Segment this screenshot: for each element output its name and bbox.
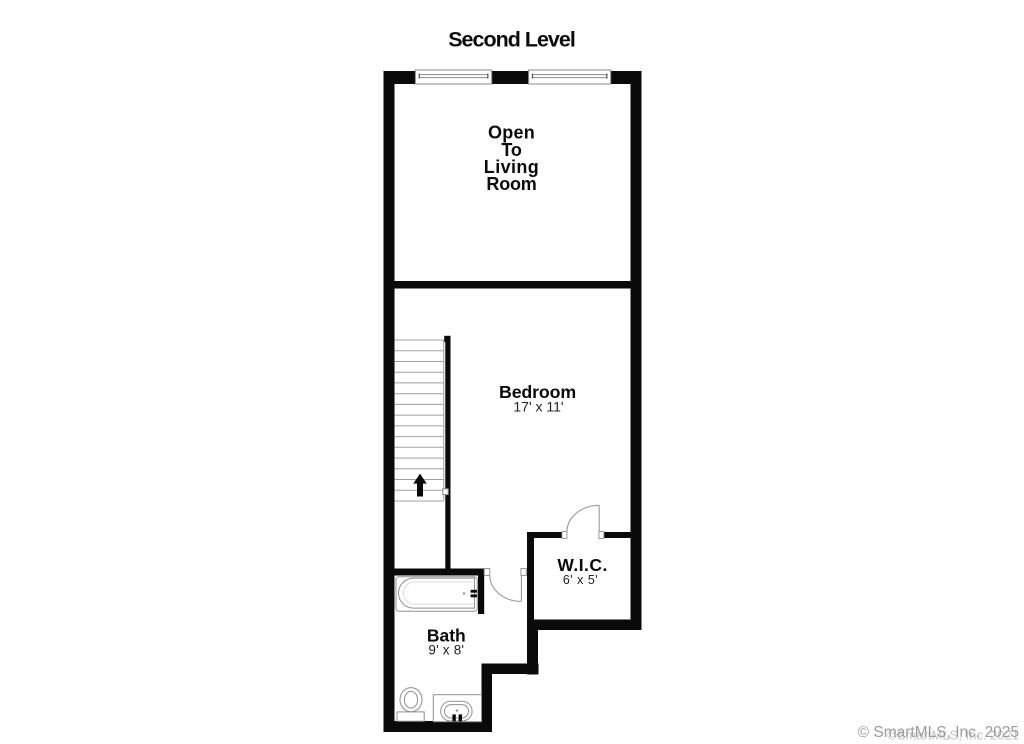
svg-text:6' x 5': 6' x 5' (563, 573, 598, 587)
svg-text:W.I.C.: W.I.C. (557, 555, 607, 575)
svg-text:Room: Room (486, 174, 536, 194)
svg-text:© SmartMLS, Inc. 2025: © SmartMLS, Inc. 2025 (858, 724, 1019, 741)
svg-text:17' x 11': 17' x 11' (513, 399, 563, 415)
svg-text:Second Level: Second Level (448, 28, 575, 52)
svg-text:9' x 8': 9' x 8' (428, 643, 464, 658)
